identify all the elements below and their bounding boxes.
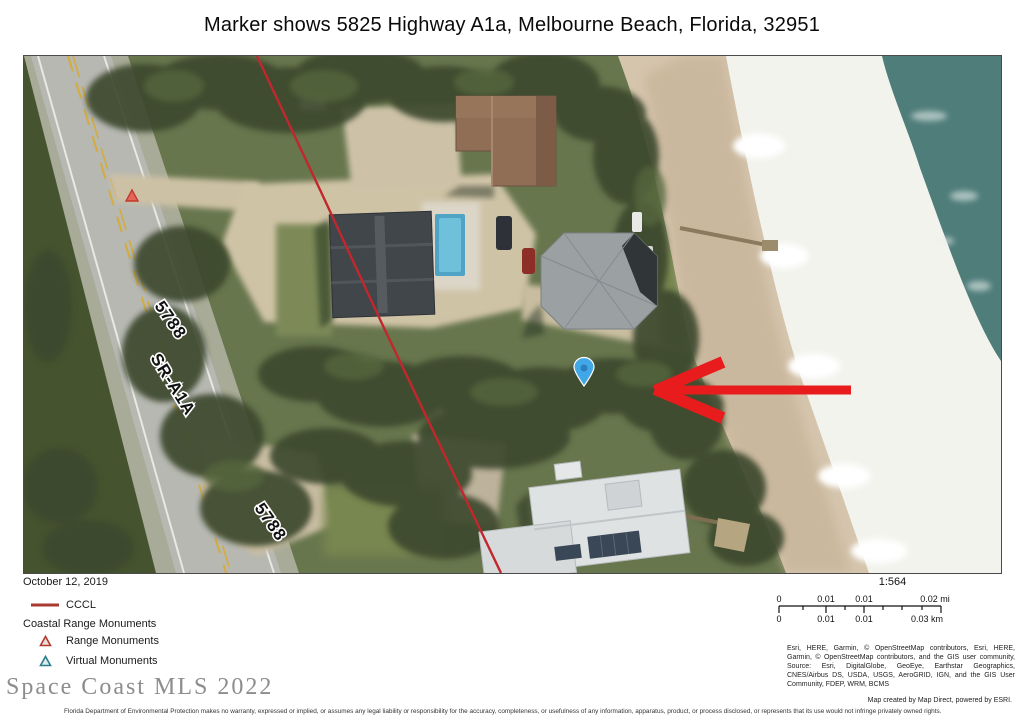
beach-deck: [714, 518, 750, 552]
legend-group-title: Coastal Range Monuments: [23, 618, 323, 630]
scale-tick: 0: [776, 594, 781, 604]
map-report-page: Marker shows 5825 Highway A1a, Melbourne…: [0, 0, 1024, 724]
scale-bar: [765, 605, 965, 614]
scale-tick: 0.03 km: [911, 614, 943, 624]
parked-car-dark: [496, 216, 512, 250]
parked-car-red: [522, 248, 535, 274]
swimming-pool-water: [439, 218, 461, 272]
aerial-map[interactable]: 5788 SR-A1A 5788: [23, 55, 1002, 574]
range-monument-triangle-icon: [28, 635, 62, 647]
scale-tick: 0.01: [855, 594, 873, 604]
parked-car-white: [632, 212, 642, 232]
legend-item-label: Virtual Monuments: [66, 655, 158, 667]
legend-item-virtual-monuments: Virtual Monuments: [23, 652, 323, 670]
scale-ratio: 1:564: [765, 576, 1020, 588]
legend-item-label: CCCL: [66, 599, 96, 611]
legend: October 12, 2019 CCCL Coastal Range Monu…: [23, 576, 323, 672]
page-title: Marker shows 5825 Highway A1a, Melbourne…: [0, 14, 1024, 37]
scale-tick: 0.01: [855, 614, 873, 624]
scale-tick: 0.02 mi: [920, 594, 950, 604]
map-attribution: Esri, HERE, Garmin, © OpenStreetMap cont…: [787, 644, 1015, 689]
legend-item-range-monuments: Range Monuments: [23, 632, 323, 650]
scale-tick: 0: [776, 614, 781, 624]
scale-bar-block: 1:564 0 0.01 0.01 0.02 mi 0 0.01 0.01 0.…: [765, 576, 1020, 628]
legend-item-label: Range Monuments: [66, 635, 159, 647]
legend-item-cccl: CCCL: [23, 596, 323, 614]
scale-tick: 0.01: [817, 614, 835, 624]
cccl-line-swatch: [28, 602, 62, 608]
disclaimer-text: Florida Department of Environmental Prot…: [64, 708, 1022, 715]
dune-deck: [762, 240, 778, 251]
mls-watermark: Space Coast MLS 2022: [6, 674, 273, 701]
map-credit: Map created by Map Direct, powered by ES…: [868, 697, 1012, 704]
aerial-map-canvas[interactable]: 5788 SR-A1A 5788: [24, 56, 1001, 573]
scale-tick: 0.01: [817, 594, 835, 604]
map-date: October 12, 2019: [23, 576, 323, 588]
virtual-monument-triangle-icon: [28, 655, 62, 667]
